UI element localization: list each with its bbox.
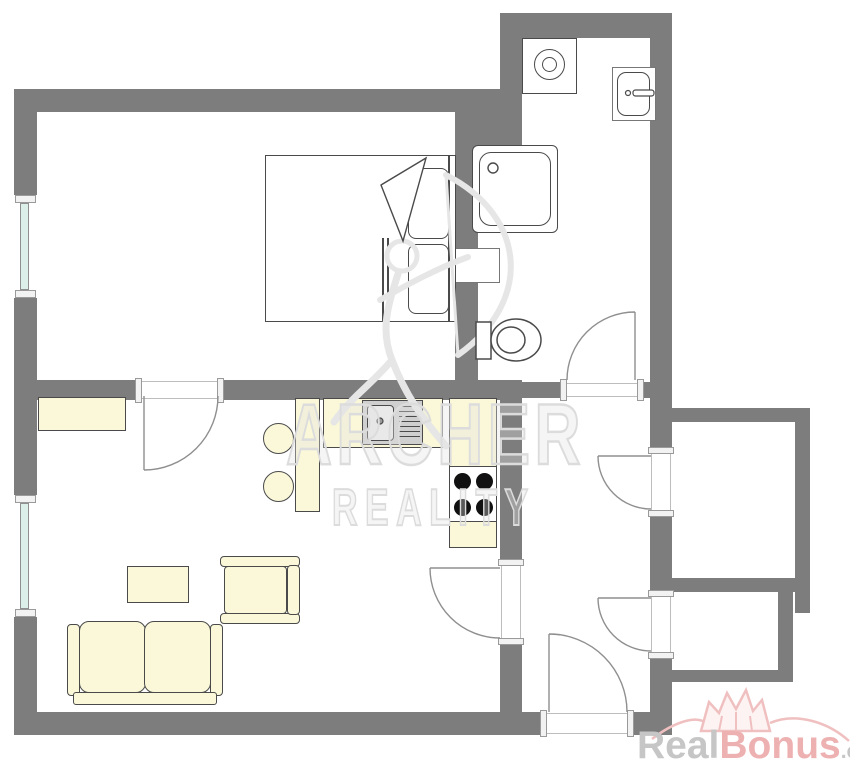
door-jamb [648, 447, 674, 454]
pillow [408, 168, 449, 239]
window-sill-cap [15, 195, 36, 203]
wall-room1-bottom [650, 578, 810, 592]
door-jamb [498, 559, 524, 566]
window-sill-cap [15, 609, 36, 617]
wall-room2-bottom [650, 670, 793, 682]
wall-left-upper [14, 112, 37, 195]
floor-plan: ARCHER REALITY RealBonus.cz [0, 0, 850, 768]
cabinet [38, 397, 126, 431]
wall-niche [455, 248, 500, 283]
wall-right-lower [650, 652, 672, 735]
toilet-bowl-inner [497, 327, 525, 353]
sofa-front-edge [73, 692, 217, 705]
bathroom-door [567, 312, 635, 380]
door-jamb [648, 510, 674, 517]
room2-door [598, 598, 651, 651]
door-jamb [637, 379, 644, 401]
room1-door [598, 456, 651, 509]
wall-bath-corner [478, 112, 500, 147]
wall-room2-right [778, 592, 793, 682]
room1-door-opening [651, 453, 671, 510]
logo-text-real: Real [637, 724, 719, 768]
window-glass [20, 503, 29, 609]
entrance-door-opening [547, 713, 627, 734]
living-hall-door [430, 568, 500, 638]
shower-tray [479, 152, 551, 226]
bathroom-sink-basin [617, 72, 650, 116]
watermark-brand-line2: REALITY [332, 478, 536, 538]
washing-machine-drum-inner-icon [542, 57, 557, 72]
coffee-table [127, 566, 189, 603]
door-jamb [135, 378, 142, 403]
realbonus-logo: RealBonus.cz [637, 724, 850, 768]
wall-hall-left-lower [500, 638, 522, 735]
toilet-tank [476, 322, 491, 359]
watermark-brand-line1: ARCHER [286, 386, 585, 485]
wall-bedroom-top [14, 89, 522, 112]
blanket-edge [387, 238, 389, 321]
toilet-bowl [491, 319, 541, 361]
window-glass [20, 203, 29, 290]
door-jamb [217, 378, 224, 403]
armchair-armrest [287, 565, 300, 615]
bedroom-door-opening [142, 381, 217, 399]
pillow [408, 244, 449, 314]
bedroom-door [144, 396, 218, 470]
wall-bathroom-top [500, 13, 672, 38]
sofa-cushion [144, 621, 211, 693]
window-sill-cap [15, 495, 36, 503]
door-jamb [648, 590, 674, 597]
door-jamb [540, 710, 547, 737]
window-sill-cap [15, 290, 36, 298]
blanket-edge [382, 238, 384, 321]
sofa-armrest [210, 624, 223, 696]
logo-text-cz: .cz [841, 740, 850, 764]
door-jamb [498, 638, 524, 645]
toilet [476, 319, 541, 361]
armchair-seat [224, 566, 287, 614]
entrance-door [549, 634, 627, 712]
room2-door-opening [651, 597, 671, 652]
armchair-front [220, 613, 300, 624]
door-jamb [627, 710, 634, 737]
sofa-cushion [79, 621, 146, 693]
wall-room1-top [650, 408, 810, 422]
hall-door-opening [501, 566, 521, 638]
wall-left-lower [14, 617, 37, 712]
logo-text-bonus: Bonus [719, 724, 840, 768]
wall-bottom-main [14, 712, 547, 735]
door-jamb [648, 652, 674, 659]
